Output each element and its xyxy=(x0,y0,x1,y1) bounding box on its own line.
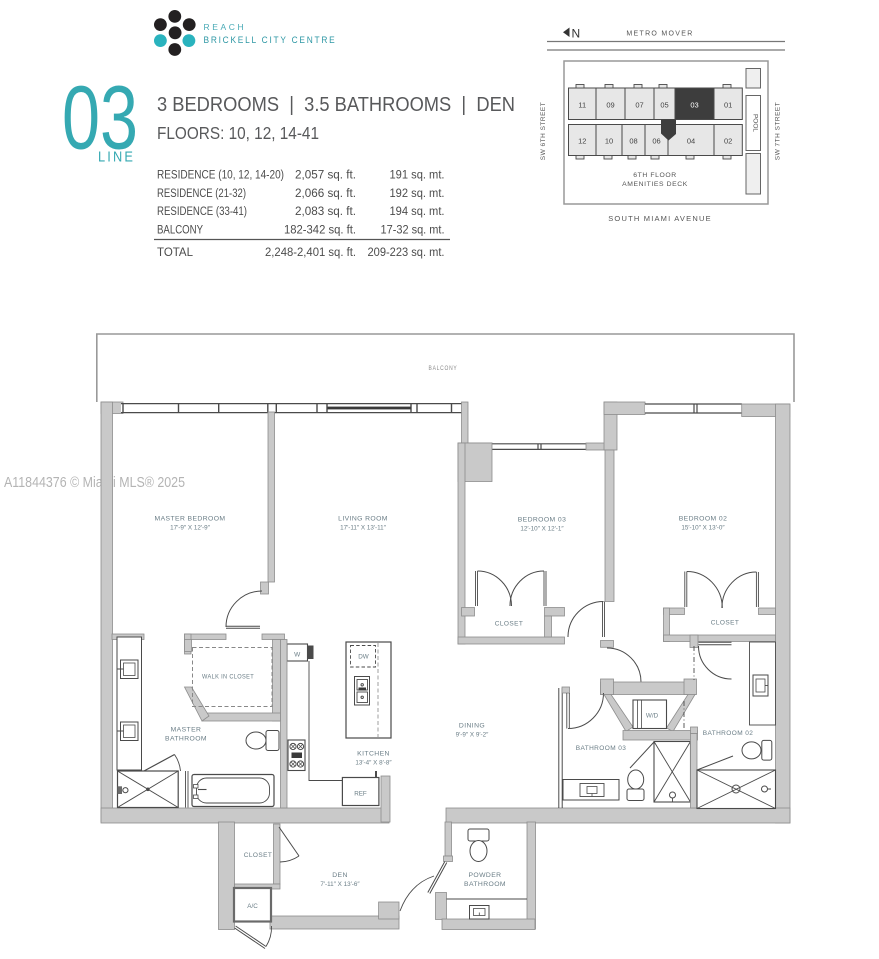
svg-text:BALCONY: BALCONY xyxy=(429,365,458,372)
svg-text:10: 10 xyxy=(605,137,613,146)
svg-text:REACH: REACH xyxy=(204,22,247,32)
svg-text:BATHROOM 03: BATHROOM 03 xyxy=(576,745,627,752)
svg-text:05: 05 xyxy=(660,101,668,110)
svg-text:17′-9″ X 12′-9″: 17′-9″ X 12′-9″ xyxy=(170,525,210,532)
svg-text:04: 04 xyxy=(687,137,695,146)
svg-text:BEDROOM 02: BEDROOM 02 xyxy=(679,516,728,523)
svg-text:REF: REF xyxy=(354,791,367,798)
svg-text:7′-11″ X 13′-6″: 7′-11″ X 13′-6″ xyxy=(320,881,360,888)
svg-text:DINING: DINING xyxy=(459,723,485,730)
svg-text:MASTER: MASTER xyxy=(171,727,202,734)
svg-text:11: 11 xyxy=(578,101,586,110)
svg-text:03: 03 xyxy=(690,101,698,110)
svg-text:BEDROOM 03: BEDROOM 03 xyxy=(518,517,567,524)
svg-text:209-223 sq. mt.: 209-223 sq. mt. xyxy=(368,245,445,259)
svg-text:CLOSET: CLOSET xyxy=(711,620,739,627)
svg-text:LINE: LINE xyxy=(98,149,135,166)
svg-text:KITCHEN: KITCHEN xyxy=(357,751,390,758)
svg-text:2,066 sq. ft.: 2,066 sq. ft. xyxy=(295,186,356,200)
svg-text:W/D: W/D xyxy=(646,713,659,720)
svg-text:WALK IN CLOSET: WALK IN CLOSET xyxy=(202,674,254,681)
svg-text:17′-11″ X 13′-11″: 17′-11″ X 13′-11″ xyxy=(340,525,387,532)
svg-text:METRO MOVER: METRO MOVER xyxy=(626,31,693,38)
svg-text:07: 07 xyxy=(635,101,643,110)
svg-text:BALCONY: BALCONY xyxy=(157,223,203,237)
svg-text:W: W xyxy=(294,652,301,659)
svg-text:BATHROOM 02: BATHROOM 02 xyxy=(703,730,754,737)
svg-text:SW 7TH STREET: SW 7TH STREET xyxy=(775,102,782,161)
svg-text:2,248-2,401 sq. ft.: 2,248-2,401 sq. ft. xyxy=(265,245,356,259)
svg-text:01: 01 xyxy=(724,101,732,110)
svg-text:08: 08 xyxy=(629,137,637,146)
svg-text:2,057 sq. ft.: 2,057 sq. ft. xyxy=(295,167,356,181)
svg-text:N: N xyxy=(572,27,581,41)
svg-text:191 sq. mt.: 191 sq. mt. xyxy=(390,167,445,181)
svg-text:CLOSET: CLOSET xyxy=(495,621,523,628)
svg-text:AMENITIES DECK: AMENITIES DECK xyxy=(622,181,688,188)
svg-text:RESIDENCE (33-41): RESIDENCE (33-41) xyxy=(157,204,247,218)
svg-text:02: 02 xyxy=(724,137,732,146)
svg-text:194 sq. mt.: 194 sq. mt. xyxy=(390,204,445,218)
svg-text:6TH FLOOR: 6TH FLOOR xyxy=(633,172,677,179)
svg-text:LIVING ROOM: LIVING ROOM xyxy=(338,516,388,523)
svg-text:06: 06 xyxy=(652,137,660,146)
svg-text:09: 09 xyxy=(606,101,614,110)
svg-text:MASTER BEDROOM: MASTER BEDROOM xyxy=(155,516,226,523)
svg-text:12: 12 xyxy=(578,137,586,146)
svg-text:DEN: DEN xyxy=(332,872,348,879)
svg-text:SW 6TH STREET: SW 6TH STREET xyxy=(540,102,547,161)
svg-text:3 BEDROOMS | 3.5 BATHROOMS: 3 BEDROOMS | 3.5 BATHROOMS | DEN xyxy=(157,93,515,116)
svg-text:192 sq. mt.: 192 sq. mt. xyxy=(390,186,445,200)
svg-text:A11844376 © Miami MLS® 2025: A11844376 © Miami MLS® 2025 xyxy=(4,475,185,491)
svg-text:9′-9″ X 9′-2″: 9′-9″ X 9′-2″ xyxy=(456,732,489,739)
svg-text:FLOORS: 10, 12, 14-41: FLOORS: 10, 12, 14-41 xyxy=(157,123,319,143)
svg-text:POWDER: POWDER xyxy=(469,872,502,879)
svg-text:RESIDENCE (21-32): RESIDENCE (21-32) xyxy=(157,186,246,200)
svg-text:12′-10″ X 12′-1″: 12′-10″ X 12′-1″ xyxy=(520,526,564,533)
svg-text:SOUTH MIAMI AVENUE: SOUTH MIAMI AVENUE xyxy=(608,214,712,223)
svg-text:BRICKELL CITY CENTRE: BRICKELL CITY CENTRE xyxy=(204,35,337,46)
svg-text:182-342 sq. ft.: 182-342 sq. ft. xyxy=(284,223,356,237)
svg-text:BATHROOM: BATHROOM xyxy=(165,736,207,743)
svg-text:A/C: A/C xyxy=(247,903,258,910)
svg-text:CLOSET: CLOSET xyxy=(244,852,272,859)
svg-text:BATHROOM: BATHROOM xyxy=(464,881,506,888)
svg-text:17-32 sq. mt.: 17-32 sq. mt. xyxy=(381,223,445,237)
svg-text:15′-10″ X 13′-0″: 15′-10″ X 13′-0″ xyxy=(681,525,725,532)
svg-text:POOL: POOL xyxy=(752,114,759,132)
svg-text:13′-4″ X 8′-8″: 13′-4″ X 8′-8″ xyxy=(355,760,392,767)
svg-text:TOTAL: TOTAL xyxy=(157,245,193,259)
svg-text:RESIDENCE (10, 12, 14-20): RESIDENCE (10, 12, 14-20) xyxy=(157,167,284,181)
svg-text:DW: DW xyxy=(358,654,369,661)
svg-text:2,083 sq. ft.: 2,083 sq. ft. xyxy=(295,204,356,218)
